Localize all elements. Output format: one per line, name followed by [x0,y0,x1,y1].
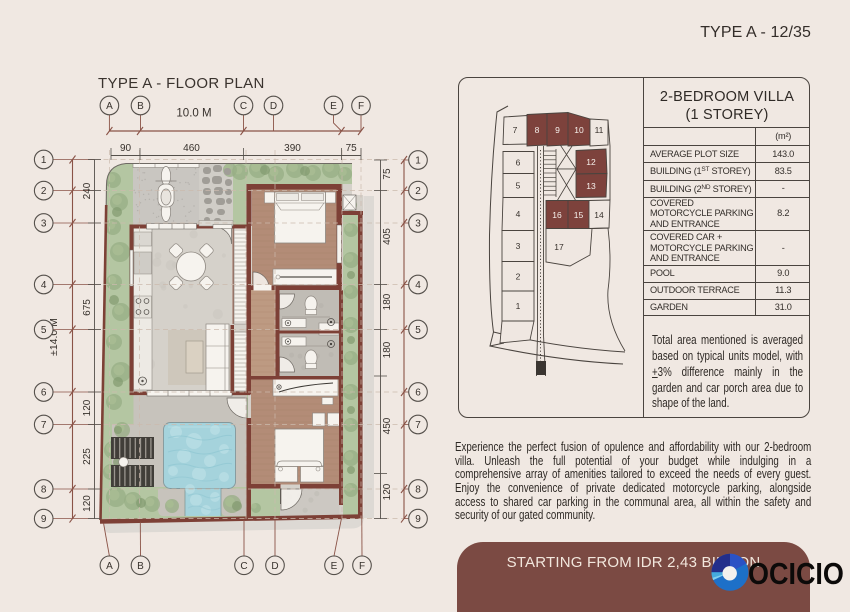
svg-text:75: 75 [382,168,393,180]
svg-text:75: 75 [346,143,358,154]
svg-text:7: 7 [415,420,421,431]
svg-text:F: F [359,561,365,572]
svg-text:6: 6 [415,388,421,399]
svg-text:1: 1 [41,155,47,166]
svg-text:9: 9 [415,514,421,525]
svg-text:8: 8 [415,485,421,496]
svg-text:4: 4 [415,280,421,291]
svg-text:1: 1 [415,156,421,167]
svg-text:4: 4 [41,280,47,291]
svg-text:2: 2 [415,186,421,197]
svg-text:2: 2 [41,186,47,197]
svg-text:450: 450 [382,417,393,434]
svg-text:E: E [331,561,338,572]
svg-text:9: 9 [41,514,47,525]
svg-text:F: F [358,101,364,112]
svg-text:90: 90 [120,143,132,154]
svg-text:120: 120 [382,483,393,500]
svg-text:5: 5 [415,325,421,336]
svg-text:120: 120 [82,399,93,416]
svg-text:E: E [330,101,337,112]
svg-text:3: 3 [415,219,421,230]
svg-text:C: C [240,101,247,112]
svg-text:405: 405 [382,228,393,245]
svg-text:5: 5 [41,325,47,336]
svg-text:C: C [240,561,247,572]
svg-text:675: 675 [82,299,93,316]
svg-text:180: 180 [382,341,393,358]
svg-text:225: 225 [82,448,93,465]
svg-text:7: 7 [41,420,47,431]
svg-text:B: B [137,101,144,112]
svg-text:390: 390 [284,143,301,154]
svg-text:D: D [271,561,278,572]
svg-text:120: 120 [82,495,93,512]
svg-text:D: D [270,101,277,112]
svg-text:460: 460 [183,143,200,154]
svg-text:6: 6 [41,388,47,399]
svg-text:B: B [137,561,144,572]
svg-text:180: 180 [382,293,393,310]
svg-text:240: 240 [82,182,93,199]
svg-text:8: 8 [41,485,47,496]
svg-text:10.0 M: 10.0 M [176,108,211,120]
svg-text:3: 3 [41,219,47,230]
svg-text:A: A [106,561,113,572]
svg-text:A: A [106,101,113,112]
